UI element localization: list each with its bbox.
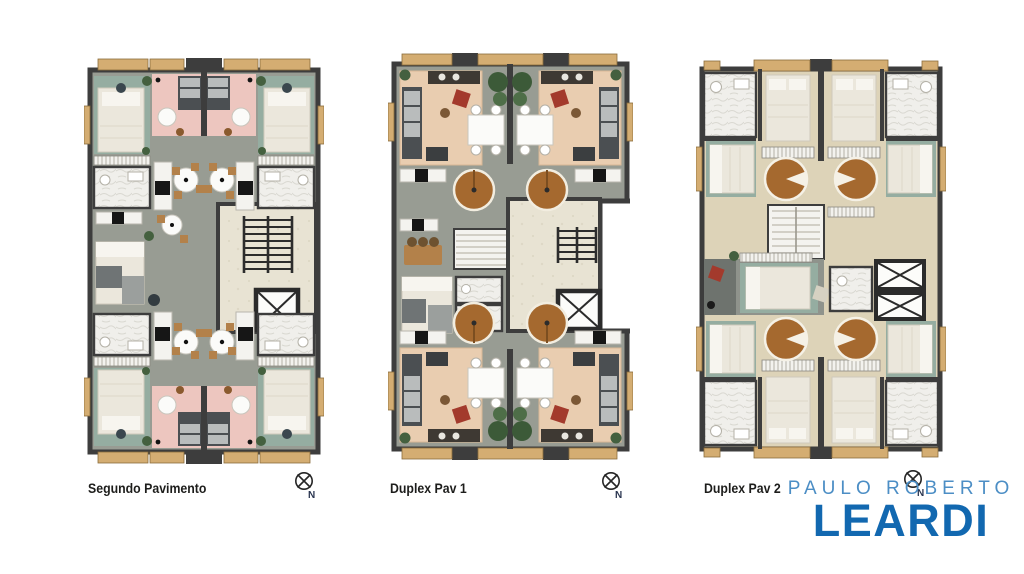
master-bedroom [704,251,830,315]
compass-icon: N [293,470,319,500]
duplex-pav-2-plan-image [696,55,946,463]
balcony-trim [98,58,310,70]
straight-stairs [768,205,824,259]
compass-icon: N [600,470,626,500]
leardi-logo: PAULO ROBERTO LEARDI [786,478,1016,543]
logo-leardi-text: LEARDI [786,498,1016,543]
plan-label-duplex-pav-1: Duplex Pav 1 [390,480,477,496]
balcony-trim [402,53,617,65]
floor-plans-sheet: Segundo Pavimento Duplex Pav 1 Duplex Pa… [0,0,1024,574]
kitchen [400,169,446,182]
upper-floor-half [84,58,324,210]
elevator-icons [876,261,924,319]
plan-label-duplex-pav-2: Duplex Pav 2 [704,480,791,496]
floor-plan-duplex-pav-2 [696,55,946,463]
straight-stairs [454,229,508,269]
kitchen [154,162,172,210]
living-room-pink [152,74,202,136]
bedroom-mid [402,277,452,333]
bathroom-mid [830,267,872,311]
bedroom [94,76,152,155]
segundo-pavimento-plan-image [84,54,324,468]
plan-label-text: Segundo Pavimento [88,480,206,496]
bedroom-side [706,141,756,197]
plan-label-text: Duplex Pav 1 [390,480,467,496]
plan-label-text: Duplex Pav 2 [704,480,781,496]
compass-north-label: N [308,490,315,500]
building-recess [600,200,633,330]
plan-label-segundo-pavimento: Segundo Pavimento [88,480,223,496]
bathroom [94,156,150,208]
compass-north-label: N [615,490,622,500]
floor-plan-duplex-pav-1 [388,49,633,464]
apartment-unit [696,69,814,200]
duplex-pav-1-plan-image [388,49,633,464]
spiral-staircase-icon [454,170,494,210]
bathroom-corner [704,73,756,137]
floor-plan-segundo-pavimento [84,54,324,468]
spiral-staircase-icon [765,158,807,200]
stairwell [218,204,316,332]
